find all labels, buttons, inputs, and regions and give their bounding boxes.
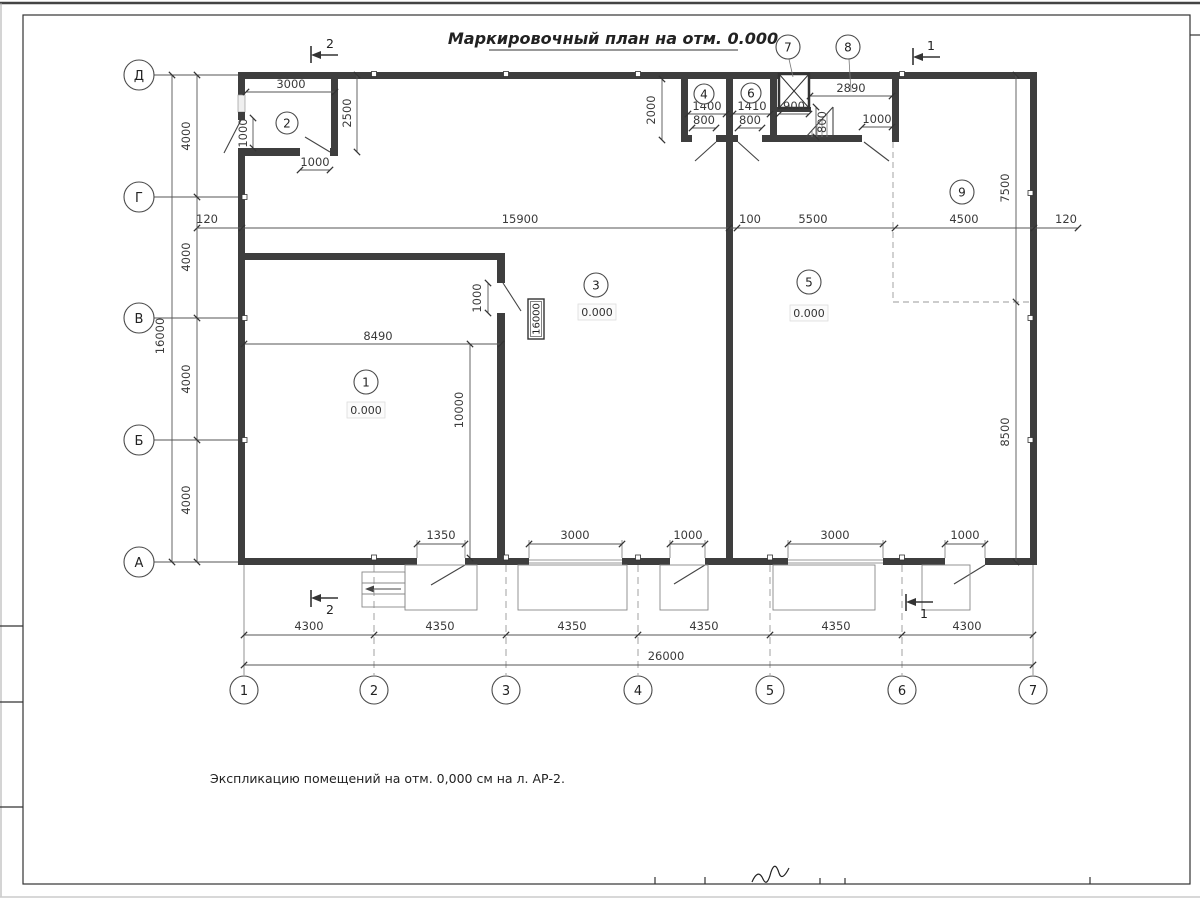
wall-segment (238, 72, 245, 95)
dim-label: 5500 (798, 212, 827, 226)
dim-label: 100 (739, 212, 761, 226)
axis-row-label: Б (135, 434, 144, 449)
section-marker-2-bottom: 2 (311, 590, 338, 617)
wall-segment (681, 135, 692, 142)
section-number: 2 (326, 602, 334, 617)
wall-segment (497, 253, 505, 283)
room1-tag: 16000 (528, 299, 544, 339)
dim-label: 1000 (300, 155, 329, 169)
dim-label: 4350 (821, 619, 850, 633)
doors (224, 120, 985, 585)
pilaster-mark (242, 438, 247, 443)
pilaster-mark (900, 555, 905, 560)
door-leaf (503, 283, 521, 311)
drawing-title: Маркировочный план на отм. 0.000 (448, 29, 778, 50)
porch (922, 565, 970, 610)
dim-label: 2000 (644, 95, 658, 124)
dim-label: 1000 (862, 112, 891, 126)
pilaster-mark (636, 555, 641, 560)
room-number: 3 (592, 279, 600, 293)
section-number: 2 (326, 36, 334, 51)
wall-segment (622, 558, 670, 565)
pilaster-mark (900, 72, 905, 77)
axis-col-label: 1 (240, 684, 248, 699)
dim-label: 7500 (998, 173, 1012, 202)
sheet-note: Экспликацию помещений на отм. 0,000 см н… (210, 771, 565, 786)
section-arrow-head (311, 594, 321, 602)
section-marker-1-top: 1 (913, 38, 940, 65)
dim-label: 1000 (470, 283, 484, 312)
dim-label: 4000 (179, 242, 193, 271)
dim-label: 4300 (294, 619, 323, 633)
dim-label: 1350 (426, 528, 455, 542)
drawing-frame (23, 15, 1190, 884)
pilaster-mark (1028, 438, 1033, 443)
wall-segment (883, 558, 945, 565)
floor-plan-drawing: Маркировочный план на отм. 0.000 (0, 0, 1200, 900)
room-number: 4 (700, 88, 708, 102)
pilaster-mark (1028, 191, 1033, 196)
room-number: 8 (844, 41, 852, 55)
pilaster-mark (372, 72, 377, 77)
dim-label: 4350 (557, 619, 586, 633)
dim-label: 4000 (179, 121, 193, 150)
axis-circles: Д Г В Б А 1 2 3 4 5 6 7 (124, 60, 1047, 704)
door-leaf (738, 142, 759, 161)
porch (773, 565, 875, 610)
room-number: 9 (958, 186, 966, 200)
section-arrow-head (311, 51, 321, 59)
tag-label: 16000 (532, 303, 543, 335)
dim-label: 4350 (689, 619, 718, 633)
wall-segment (681, 72, 688, 142)
wall-segment (238, 558, 417, 565)
dim-label: 4500 (949, 212, 978, 226)
axis-row-label: А (135, 556, 144, 571)
entry-arrow-head (365, 586, 374, 593)
axis-col-label: 7 (1029, 684, 1037, 699)
page-title: Маркировочный план на отм. 0.000 (448, 29, 778, 48)
wall-segment (770, 72, 777, 142)
axis-col-label: 3 (502, 684, 510, 699)
section-marker-1-bottom: 1 (906, 594, 933, 621)
dim-label: 900 (783, 99, 805, 113)
axis-row-label: Д (134, 69, 144, 84)
elevation-value: 0.000 (793, 307, 825, 320)
dim-label: 4000 (179, 364, 193, 393)
window (238, 95, 245, 112)
door-leaf (695, 142, 716, 161)
pilaster-mark (1028, 316, 1033, 321)
pilaster-mark (242, 316, 247, 321)
wall-segment (331, 72, 338, 156)
dim-label: 4000 (179, 485, 193, 514)
pilaster-mark (504, 72, 509, 77)
door-leaf (674, 565, 705, 584)
porch (405, 565, 477, 610)
dim-label: 8490 (363, 329, 392, 343)
room-number: 2 (283, 117, 291, 131)
dim-label: 120 (196, 212, 218, 226)
section-number: 1 (920, 606, 928, 621)
door-leaf (864, 142, 889, 161)
signature-scribble (752, 866, 789, 882)
dimension-labels: 3000 2500 1000 1000 2000 1400 1410 900 8… (153, 77, 1077, 663)
dim-label: 15900 (502, 212, 539, 226)
dim-label: 10000 (452, 392, 466, 429)
room-number: 5 (805, 276, 813, 290)
wall-segment (892, 72, 899, 142)
pilaster-mark (372, 555, 377, 560)
porch (518, 565, 627, 610)
room-number: 6 (747, 87, 755, 101)
axis-col-label: 6 (898, 684, 906, 699)
axis-col-label: 2 (370, 684, 378, 699)
dim-label: 8500 (998, 417, 1012, 446)
section-number: 1 (927, 38, 935, 53)
axis-row-label: Г (135, 191, 143, 206)
dim-label: 800 (815, 111, 829, 133)
dim-label: 16000 (153, 318, 167, 355)
dim-label: 3000 (820, 528, 849, 542)
door-leaf (305, 137, 330, 152)
dim-label: 3000 (560, 528, 589, 542)
wall-segment (497, 313, 505, 565)
dim-label: 800 (693, 113, 715, 127)
dim-label: 4300 (952, 619, 981, 633)
dim-label: 4350 (425, 619, 454, 633)
elevation-value: 0.000 (350, 404, 382, 417)
dim-label: 120 (1055, 212, 1077, 226)
dim-label: 800 (739, 113, 761, 127)
dim-label: 1000 (673, 528, 702, 542)
dim-label: 3000 (276, 77, 305, 91)
porch (660, 565, 708, 610)
axis-col-label: 4 (634, 684, 642, 699)
pilaster-mark (504, 555, 509, 560)
dim-label: 1000 (950, 528, 979, 542)
dim-label: 1000 (236, 118, 250, 147)
room-number: 1 (362, 376, 370, 390)
dim-label: 26000 (648, 649, 685, 663)
wall-segment (238, 148, 245, 565)
wall-segment (705, 558, 788, 565)
door-leaf (954, 565, 985, 584)
pilaster-mark (636, 72, 641, 77)
section-arrow-head (913, 53, 923, 61)
door-leaf (431, 565, 465, 585)
wall-segment (716, 135, 738, 142)
axis-col-label: 5 (766, 684, 774, 699)
pilaster-mark (242, 195, 247, 200)
walls (238, 72, 1037, 566)
dim-label: 2500 (340, 98, 354, 127)
section-arrow-head (906, 598, 916, 606)
section-marker-2-top: 2 (311, 36, 338, 63)
wall-segment (465, 558, 529, 565)
wall-segment (726, 72, 733, 565)
wall-segment (985, 558, 1037, 565)
axis-row-label: В (135, 312, 144, 327)
pilaster-mark (768, 555, 773, 560)
room-number: 7 (784, 41, 792, 55)
wall-segment (238, 253, 505, 260)
elevation-value: 0.000 (581, 306, 613, 319)
wall-segment (238, 148, 300, 156)
elevation-marks: 0.000 0.000 0.000 (347, 304, 828, 418)
